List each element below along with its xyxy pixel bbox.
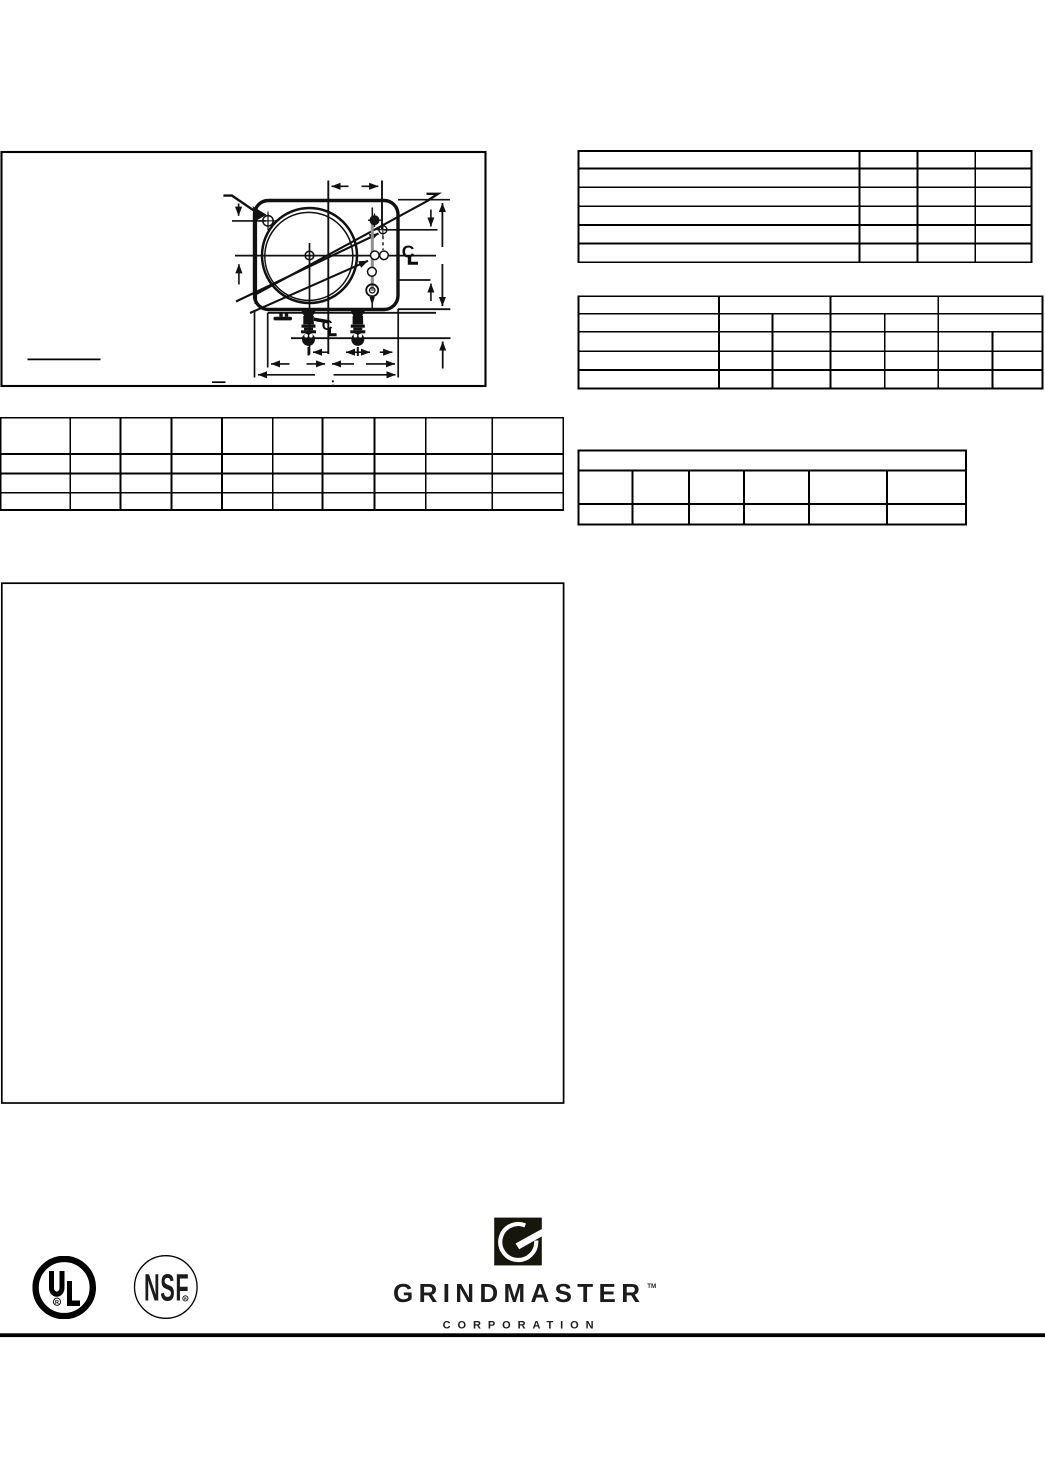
- svg-text:NSF: NSF: [144, 1266, 189, 1309]
- svg-text:R: R: [55, 1300, 59, 1306]
- svg-text:TM: TM: [647, 1283, 656, 1290]
- svg-text:R: R: [184, 1297, 187, 1301]
- svg-text:CORPORATION: CORPORATION: [443, 1320, 600, 1332]
- svg-text:GRINDMASTER: GRINDMASTER: [393, 1278, 647, 1308]
